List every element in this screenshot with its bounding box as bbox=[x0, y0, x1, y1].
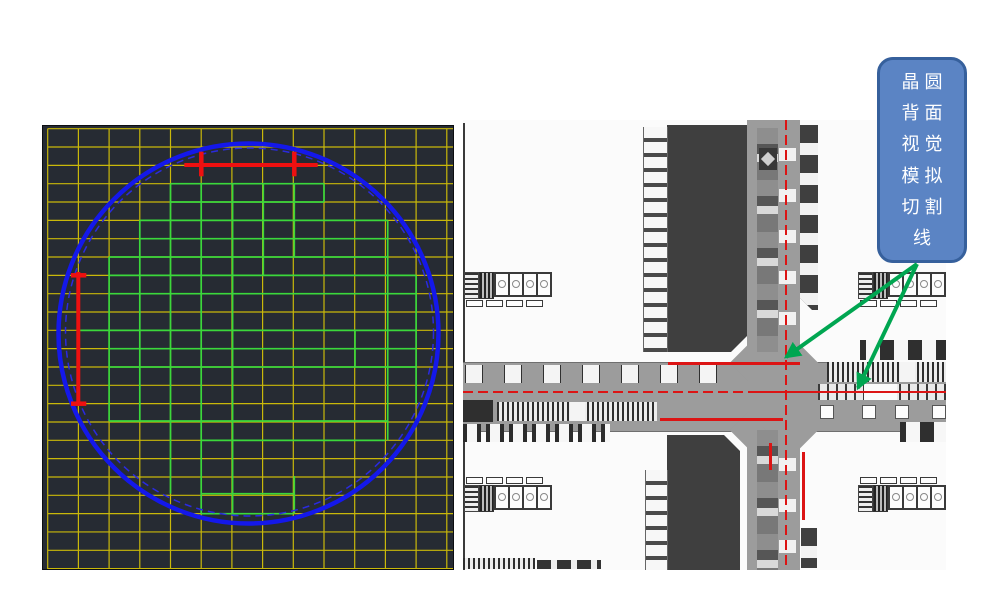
probe-pad bbox=[536, 485, 552, 510]
street-test-features bbox=[757, 430, 778, 570]
pad-column bbox=[645, 470, 668, 570]
simulated-cut-line-vertical-dashed bbox=[785, 120, 788, 570]
cut-line-street-edge-top bbox=[668, 362, 800, 365]
cut-line-street-edge-bottom bbox=[660, 418, 783, 421]
probe-pad bbox=[930, 272, 946, 297]
die-edge-pads-top-right bbox=[800, 125, 818, 310]
cut-line-street-edge-right bbox=[802, 452, 805, 520]
test-pad-structure bbox=[464, 272, 548, 306]
cut-line-street-edge-left bbox=[769, 443, 772, 470]
pad-tab bbox=[860, 300, 877, 307]
pad-tab bbox=[880, 300, 897, 307]
dark-test-block bbox=[463, 400, 493, 422]
test-pad-structure bbox=[858, 477, 942, 511]
comb-test-structure bbox=[827, 362, 946, 382]
pad-tab bbox=[526, 477, 543, 484]
street-pad-row bbox=[463, 424, 610, 442]
probe-pad bbox=[536, 272, 552, 297]
pad-tab bbox=[920, 300, 937, 307]
pad-tab bbox=[526, 300, 543, 307]
pad-tab bbox=[506, 300, 523, 307]
street-pad-row bbox=[779, 120, 796, 352]
slide: 晶圆 背面 视觉 模拟 切割 线 bbox=[0, 0, 1004, 604]
edge-block-strip bbox=[537, 560, 601, 569]
pad-tab bbox=[880, 477, 897, 484]
pad-tab bbox=[486, 477, 503, 484]
street-pad-row bbox=[779, 430, 796, 570]
comb-gap bbox=[900, 362, 915, 382]
pad-row bbox=[860, 340, 946, 360]
stripe-block bbox=[464, 272, 479, 299]
callout-line: 切割 bbox=[897, 198, 948, 216]
comb-block bbox=[873, 272, 888, 299]
die-block-bottom-left bbox=[667, 435, 740, 570]
probe-pad bbox=[930, 485, 946, 510]
pad-tab bbox=[466, 477, 483, 484]
pad-column bbox=[643, 127, 668, 352]
comb-block bbox=[873, 485, 888, 512]
wafer-outline-dashed bbox=[66, 148, 434, 516]
test-pad-structure bbox=[858, 272, 942, 306]
stripe-block bbox=[464, 485, 479, 512]
wafer-map-panel bbox=[42, 125, 454, 570]
comb-block bbox=[479, 272, 494, 299]
pad-tab bbox=[920, 477, 937, 484]
pad-tab bbox=[900, 300, 917, 307]
pad bbox=[895, 405, 909, 419]
pad bbox=[932, 405, 946, 419]
comb-block bbox=[479, 485, 494, 512]
wafer-backside-photo bbox=[463, 120, 946, 570]
pad-tab bbox=[860, 477, 877, 484]
stripe-block bbox=[858, 272, 873, 299]
alignment-mark-diamond bbox=[761, 152, 775, 166]
pad-tab bbox=[900, 477, 917, 484]
pad-row bbox=[900, 422, 946, 442]
die-block-top-left bbox=[667, 125, 747, 352]
wafer-map-drawing bbox=[43, 126, 453, 569]
callout-line: 晶圆 bbox=[897, 73, 948, 91]
die-edge-pads-bottom-right bbox=[801, 528, 817, 568]
comb-gap bbox=[570, 402, 585, 421]
alignment-mark bbox=[759, 148, 777, 170]
pad-tab bbox=[466, 300, 483, 307]
street-pad-row bbox=[465, 365, 727, 383]
pad bbox=[820, 405, 834, 419]
edge-tick-strip bbox=[463, 558, 535, 569]
wafer-outline bbox=[59, 144, 439, 524]
callout-wafer-backside-cut-line: 晶圆 背面 视觉 模拟 切割 线 bbox=[877, 57, 967, 263]
stripe-block bbox=[858, 485, 873, 512]
callout-line: 视觉 bbox=[897, 135, 948, 153]
pad-tab bbox=[486, 300, 503, 307]
pad bbox=[862, 405, 876, 419]
callout-line: 背面 bbox=[897, 104, 948, 122]
callout-line: 线 bbox=[908, 229, 936, 247]
callout-line: 模拟 bbox=[897, 167, 948, 185]
test-pad-structure bbox=[464, 477, 548, 511]
pad-tab bbox=[506, 477, 523, 484]
